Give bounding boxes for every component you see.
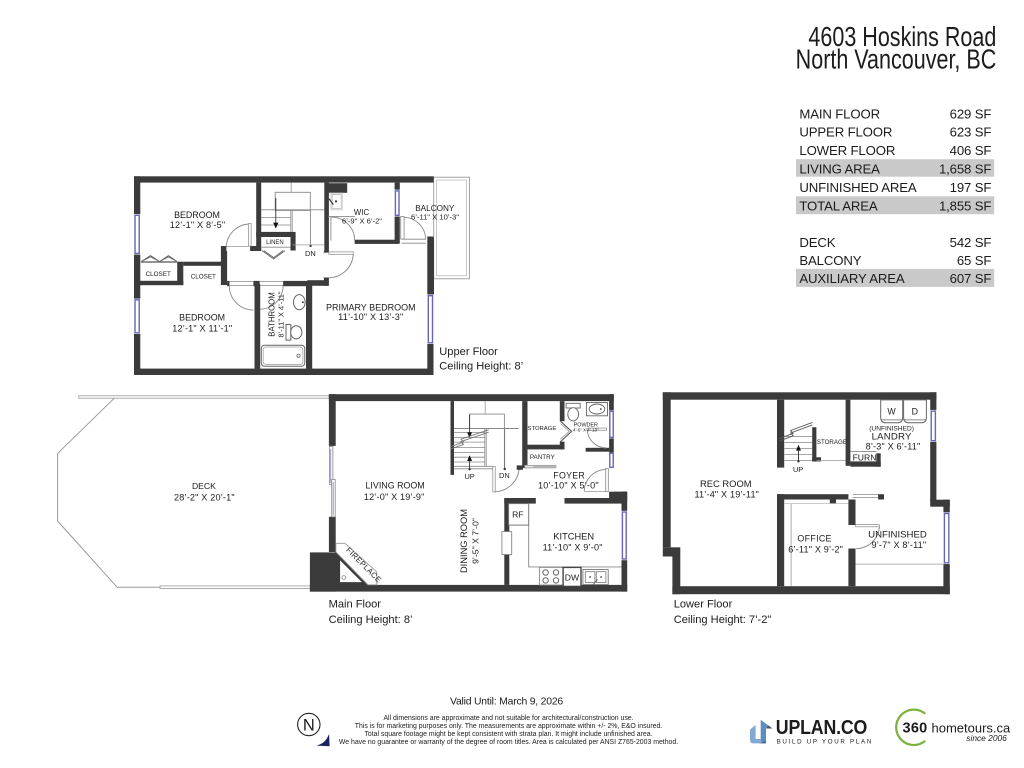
svg-text:8’-3" X 6’-11": 8’-3" X 6’-11" — [866, 441, 921, 451]
svg-text:This is for marketing purposes: This is for marketing purposes only. The… — [355, 723, 663, 730]
svg-text:DECK: DECK — [799, 235, 835, 250]
svg-text:11’-10" X 9’-0": 11’-10" X 9’-0" — [543, 543, 603, 553]
svg-text:28’-2" X 20’-1": 28’-2" X 20’-1" — [174, 492, 235, 502]
svg-text:11’-4" X 19’-11": 11’-4" X 19’-11" — [694, 490, 759, 500]
svg-text:TOTAL AREA: TOTAL AREA — [799, 199, 877, 214]
svg-text:North Vancouver, BC: North Vancouver, BC — [796, 45, 997, 75]
svg-text:BUILD UP YOUR PLAN: BUILD UP YOUR PLAN — [777, 738, 873, 745]
svg-text:1,855 SF: 1,855 SF — [939, 199, 991, 214]
svg-text:FOYER: FOYER — [553, 471, 585, 481]
svg-text:65 SF: 65 SF — [957, 253, 992, 268]
svg-text:STORAGE: STORAGE — [528, 426, 557, 432]
svg-text:12’-0" X 19’-9": 12’-0" X 19’-9" — [364, 492, 425, 502]
svg-text:BEDROOM: BEDROOM — [179, 313, 225, 323]
svg-text:12’-1" X 11’-1": 12’-1" X 11’-1" — [172, 323, 232, 333]
svg-text:8’-11" X 4’-11": 8’-11" X 4’-11" — [277, 291, 286, 337]
svg-text:W: W — [887, 407, 896, 417]
svg-text:UPLAN.CO: UPLAN.CO — [776, 717, 867, 739]
svg-text:All dimensions are approximate: All dimensions are approximate and not s… — [383, 715, 633, 722]
svg-text:STORAGE: STORAGE — [817, 439, 847, 446]
svg-text:FURN: FURN — [853, 453, 877, 463]
svg-text:Valid Until: March 9, 2026: Valid Until: March 9, 2026 — [450, 697, 563, 708]
svg-text:OFFICE: OFFICE — [797, 534, 831, 544]
svg-text:since 2006: since 2006 — [966, 733, 1007, 743]
svg-text:360: 360 — [902, 721, 927, 737]
svg-text:542 SF: 542 SF — [950, 235, 992, 250]
svg-text:BATHROOM: BATHROOM — [268, 292, 277, 336]
svg-text:6’-11" X 10’-3": 6’-11" X 10’-3" — [411, 213, 459, 222]
svg-text:DN: DN — [499, 471, 510, 480]
svg-text:LIVING ROOM: LIVING ROOM — [366, 481, 425, 491]
svg-text:6’-11" X 9’-2": 6’-11" X 9’-2" — [788, 545, 843, 555]
svg-text:1,658 SF: 1,658 SF — [939, 162, 991, 177]
svg-text:UNFINISHED AREA: UNFINISHED AREA — [799, 180, 917, 195]
svg-text:Lower Floor: Lower Floor — [674, 599, 733, 611]
svg-text:BEDROOM: BEDROOM — [174, 210, 220, 220]
svg-text:Ceiling Height: 8’: Ceiling Height: 8’ — [329, 614, 413, 626]
svg-text:Ceiling Height: 8’: Ceiling Height: 8’ — [439, 361, 523, 373]
svg-text:REC ROOM: REC ROOM — [700, 478, 752, 489]
svg-text:9’-7" X 8’-11": 9’-7" X 8’-11" — [871, 540, 926, 550]
svg-text:406 SF: 406 SF — [950, 143, 992, 158]
svg-text:629 SF: 629 SF — [950, 106, 992, 121]
svg-text:12’-1" X 8’-5": 12’-1" X 8’-5" — [170, 220, 225, 230]
svg-text:623 SF: 623 SF — [950, 125, 992, 140]
svg-text:4’-6" X 4’-10": 4’-6" X 4’-10" — [573, 428, 599, 433]
svg-text:Upper Floor: Upper Floor — [439, 346, 498, 358]
svg-text:11’-10" X 13’-3": 11’-10" X 13’-3" — [338, 312, 403, 322]
svg-text:6’-9" X 6’-2": 6’-9" X 6’-2" — [342, 216, 382, 225]
svg-text:D: D — [912, 407, 918, 417]
svg-text:We have no guarantee or warran: We have no guarantee or warranty of the … — [339, 739, 678, 746]
svg-text:AUXILIARY AREA: AUXILIARY AREA — [799, 271, 905, 286]
svg-text:KITCHEN: KITCHEN — [553, 531, 594, 541]
svg-text:UP: UP — [464, 472, 474, 481]
svg-text:Total square footage might be: Total square footage might be kept consi… — [364, 731, 652, 738]
svg-text:LOWER FLOOR: LOWER FLOOR — [799, 143, 895, 158]
svg-text:197 SF: 197 SF — [950, 180, 992, 195]
svg-text:DW: DW — [565, 572, 580, 582]
svg-text:Main Floor: Main Floor — [329, 599, 382, 611]
svg-text:UNFINISHED: UNFINISHED — [868, 529, 927, 540]
svg-text:Ceiling Height: 7’-2": Ceiling Height: 7’-2" — [674, 614, 772, 626]
svg-text:DECK: DECK — [192, 481, 216, 491]
svg-text:BALCONY: BALCONY — [799, 253, 861, 268]
svg-text:10’-10" X 5’-0": 10’-10" X 5’-0" — [538, 480, 599, 490]
svg-text:N: N — [303, 716, 315, 734]
svg-text:MAIN FLOOR: MAIN FLOOR — [799, 106, 880, 121]
svg-text:LINEN: LINEN — [266, 240, 284, 246]
svg-text:9’-5" X 7’-0": 9’-5" X 7’-0" — [471, 518, 481, 564]
svg-text:607 SF: 607 SF — [950, 271, 992, 286]
svg-text:LIVING AREA: LIVING AREA — [799, 162, 880, 177]
svg-text:RF: RF — [512, 509, 523, 519]
svg-text:CLOSET: CLOSET — [191, 273, 216, 280]
svg-text:DINING ROOM: DINING ROOM — [459, 509, 469, 573]
svg-text:UPPER FLOOR: UPPER FLOOR — [799, 125, 892, 140]
svg-text:CLOSET: CLOSET — [146, 271, 171, 278]
svg-text:PANTRY: PANTRY — [530, 454, 556, 461]
svg-text:DN: DN — [305, 249, 316, 258]
svg-text:UP: UP — [793, 465, 803, 474]
